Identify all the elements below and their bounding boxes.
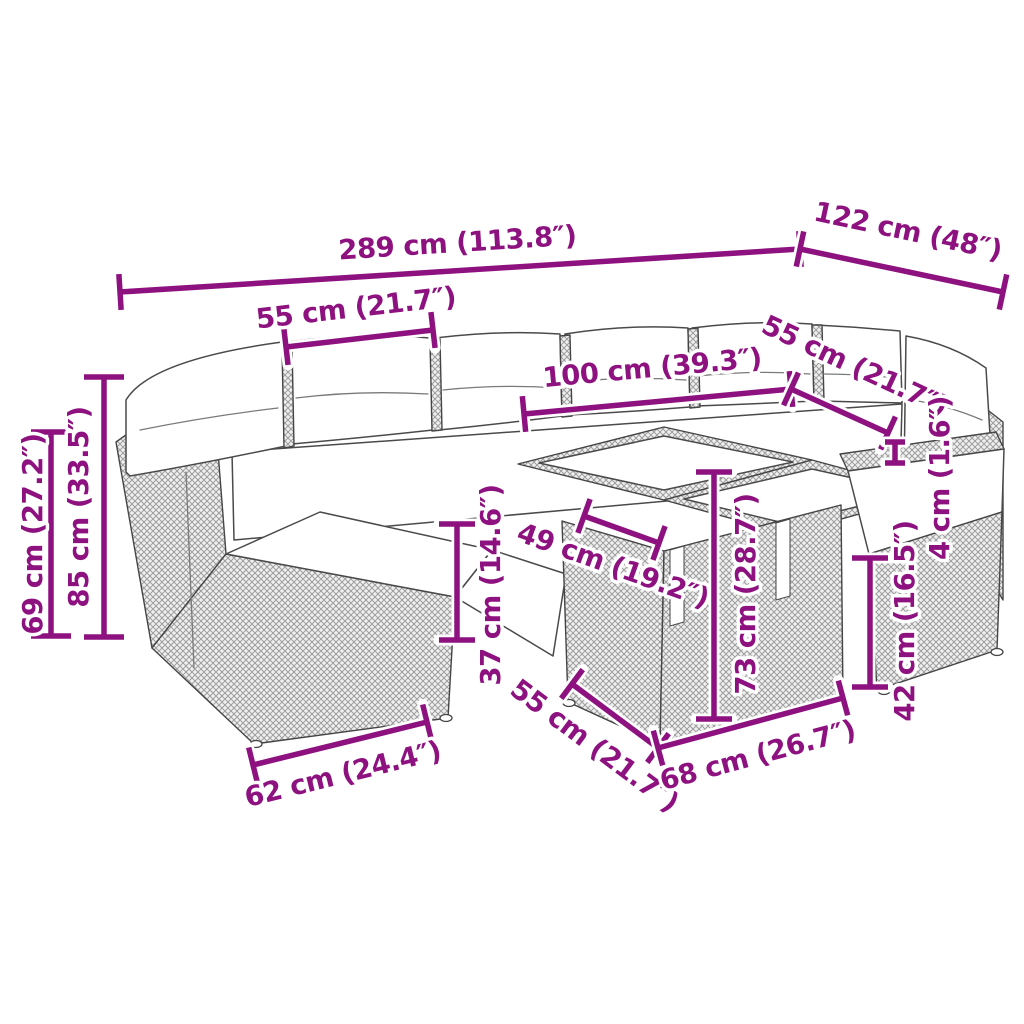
- dimension-label-table-height: 73 cm (28.7″): [730, 493, 762, 694]
- product-diagram-svg: 289 cm (113.8″)122 cm (48″)55 cm (21.7″)…: [0, 0, 1024, 1024]
- back-cushion: [288, 336, 433, 444]
- dimension-back-height: 85 cm (33.5″): [63, 377, 124, 637]
- dimension-label-overall-width: 289 cm (113.8″): [337, 220, 577, 267]
- dimension-label-back-height: 85 cm (33.5″): [63, 406, 95, 607]
- dimension-back-depth: 122 cm (48″): [796, 196, 1006, 310]
- table-module-gap: [776, 519, 790, 600]
- furniture-foot: [991, 649, 1003, 656]
- dimension-label-seat-frame-height: 37 cm (14.6″): [475, 484, 507, 685]
- dimension-label-armrest-thickness: 4 cm (1.6″): [924, 396, 956, 560]
- dimension-label-seat-height: 69 cm (27.2″): [17, 433, 49, 634]
- furniture-foot: [440, 715, 452, 722]
- dimension-label-chair-frame-height: 42 cm (16.5″): [889, 520, 921, 721]
- dimension-diagram: 289 cm (113.8″)122 cm (48″)55 cm (21.7″)…: [0, 0, 1024, 1024]
- dimension-overall-width: 289 cm (113.8″): [119, 220, 801, 310]
